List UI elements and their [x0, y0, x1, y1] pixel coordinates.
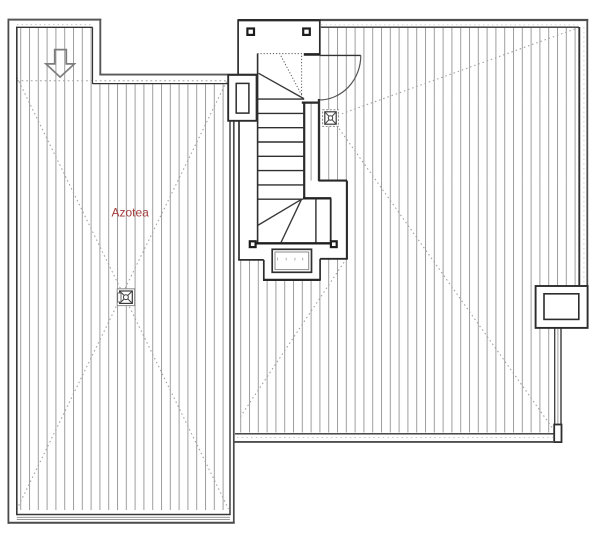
svg-text:Azotea: Azotea: [112, 206, 150, 220]
